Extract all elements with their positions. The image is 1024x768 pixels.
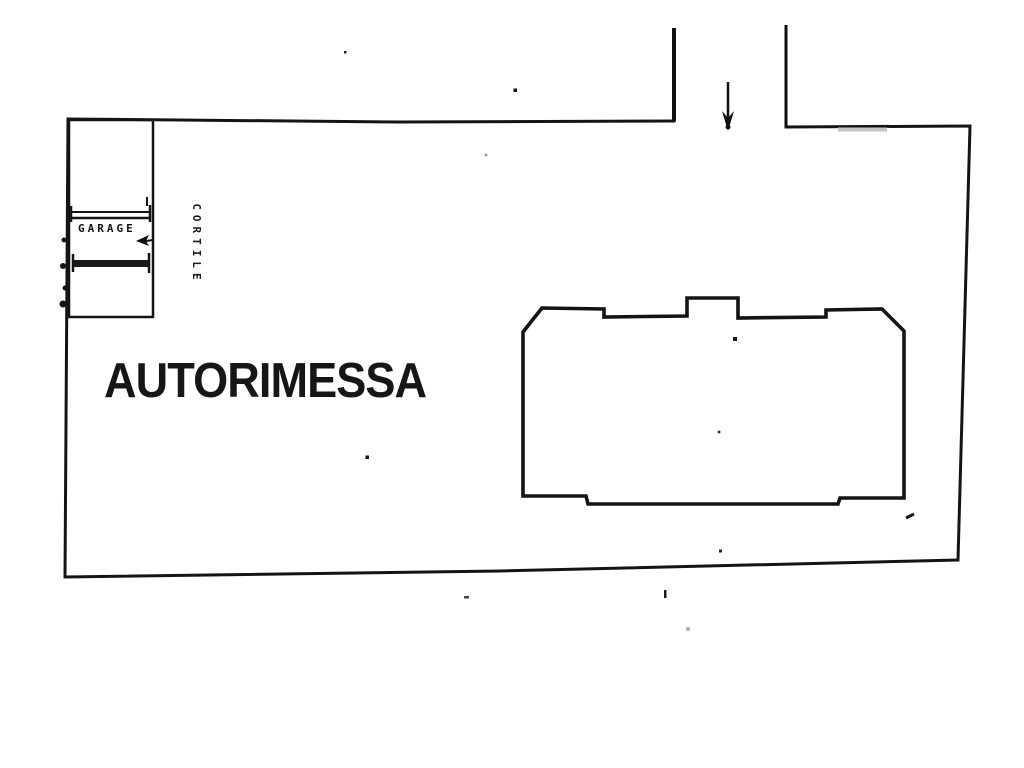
garage-label: GARAGE <box>78 223 136 234</box>
garage-door-lower <box>72 253 150 273</box>
entrance-arrow-icon <box>722 82 734 131</box>
scan-specks <box>344 51 914 631</box>
autorimessa-label: AUTORIMESSA <box>104 357 426 406</box>
garage-arrow-icon <box>136 235 153 246</box>
cortile-label: CORTILE <box>188 194 202 294</box>
outer-boundary <box>65 119 970 577</box>
garage-door-upper <box>70 197 150 222</box>
garage-box <box>69 120 153 317</box>
building-outline <box>523 298 904 504</box>
floor-plan-page: AUTORIMESSA GARAGE CORTILE <box>0 0 1024 768</box>
